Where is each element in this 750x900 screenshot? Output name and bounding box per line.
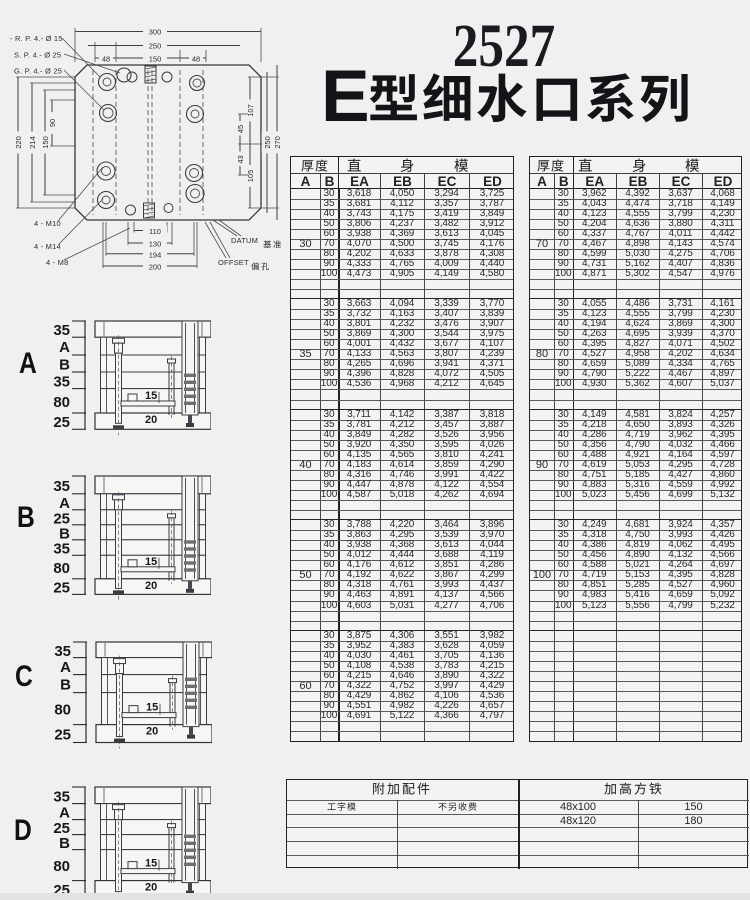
svg-text:194: 194 bbox=[149, 250, 162, 259]
svg-text:A: A bbox=[59, 805, 70, 822]
svg-text:35: 35 bbox=[53, 478, 70, 495]
svg-text:A: A bbox=[59, 495, 70, 512]
svg-text:20: 20 bbox=[145, 414, 157, 426]
svg-text:48: 48 bbox=[192, 55, 200, 64]
svg-text:35: 35 bbox=[53, 788, 70, 805]
svg-text:43: 43 bbox=[236, 155, 245, 163]
svg-text:90: 90 bbox=[48, 119, 57, 127]
svg-text:A: A bbox=[59, 339, 70, 356]
svg-text:110: 110 bbox=[149, 227, 161, 236]
svg-text:250: 250 bbox=[263, 136, 272, 149]
svg-text:25: 25 bbox=[53, 580, 70, 597]
svg-text:107: 107 bbox=[246, 104, 255, 117]
svg-text:B: B bbox=[59, 356, 70, 373]
svg-text:15: 15 bbox=[145, 390, 157, 402]
svg-text:4 - M14: 4 - M14 bbox=[34, 242, 61, 251]
svg-text:80: 80 bbox=[53, 394, 70, 411]
svg-text:15: 15 bbox=[146, 702, 158, 714]
svg-text:4 - M10: 4 - M10 bbox=[34, 219, 61, 228]
svg-text:300: 300 bbox=[149, 28, 162, 37]
svg-text:150: 150 bbox=[41, 136, 50, 149]
svg-text:20: 20 bbox=[145, 580, 157, 592]
svg-text:15: 15 bbox=[145, 858, 157, 870]
svg-text:G. P. 4.- Ø 25: G. P. 4.- Ø 25 bbox=[14, 67, 62, 76]
svg-text:45: 45 bbox=[236, 125, 245, 133]
svg-text:80: 80 bbox=[53, 560, 70, 577]
svg-text:35: 35 bbox=[53, 541, 70, 558]
svg-text:B: B bbox=[60, 677, 71, 694]
svg-text:A: A bbox=[60, 659, 71, 676]
svg-text:150: 150 bbox=[149, 55, 162, 64]
svg-text:B: B bbox=[59, 835, 70, 852]
svg-text:25: 25 bbox=[53, 414, 70, 431]
svg-text:80: 80 bbox=[53, 858, 70, 875]
svg-text:270: 270 bbox=[273, 136, 282, 149]
svg-text:20: 20 bbox=[145, 882, 157, 894]
svg-text:35: 35 bbox=[53, 373, 70, 390]
svg-text:35: 35 bbox=[54, 643, 71, 660]
svg-text:15: 15 bbox=[145, 556, 157, 568]
svg-text:130: 130 bbox=[149, 240, 162, 249]
svg-text:35: 35 bbox=[53, 322, 70, 339]
svg-text:105: 105 bbox=[246, 170, 255, 183]
svg-text:25: 25 bbox=[54, 727, 71, 744]
svg-text:OFFSET: OFFSET bbox=[218, 258, 249, 267]
svg-text:48: 48 bbox=[102, 55, 110, 64]
svg-text:S. P. 4.- Ø 25: S. P. 4.- Ø 25 bbox=[14, 51, 61, 60]
svg-text:DATUM: DATUM bbox=[231, 236, 258, 245]
svg-text:200: 200 bbox=[149, 263, 162, 272]
svg-text:80: 80 bbox=[54, 702, 71, 719]
svg-text:220: 220 bbox=[14, 136, 23, 149]
svg-text:214: 214 bbox=[28, 136, 37, 149]
svg-text:250: 250 bbox=[149, 42, 162, 51]
svg-text:20: 20 bbox=[146, 726, 158, 738]
svg-text:- R. P. 4.- Ø 15: - R. P. 4.- Ø 15 bbox=[10, 34, 63, 43]
